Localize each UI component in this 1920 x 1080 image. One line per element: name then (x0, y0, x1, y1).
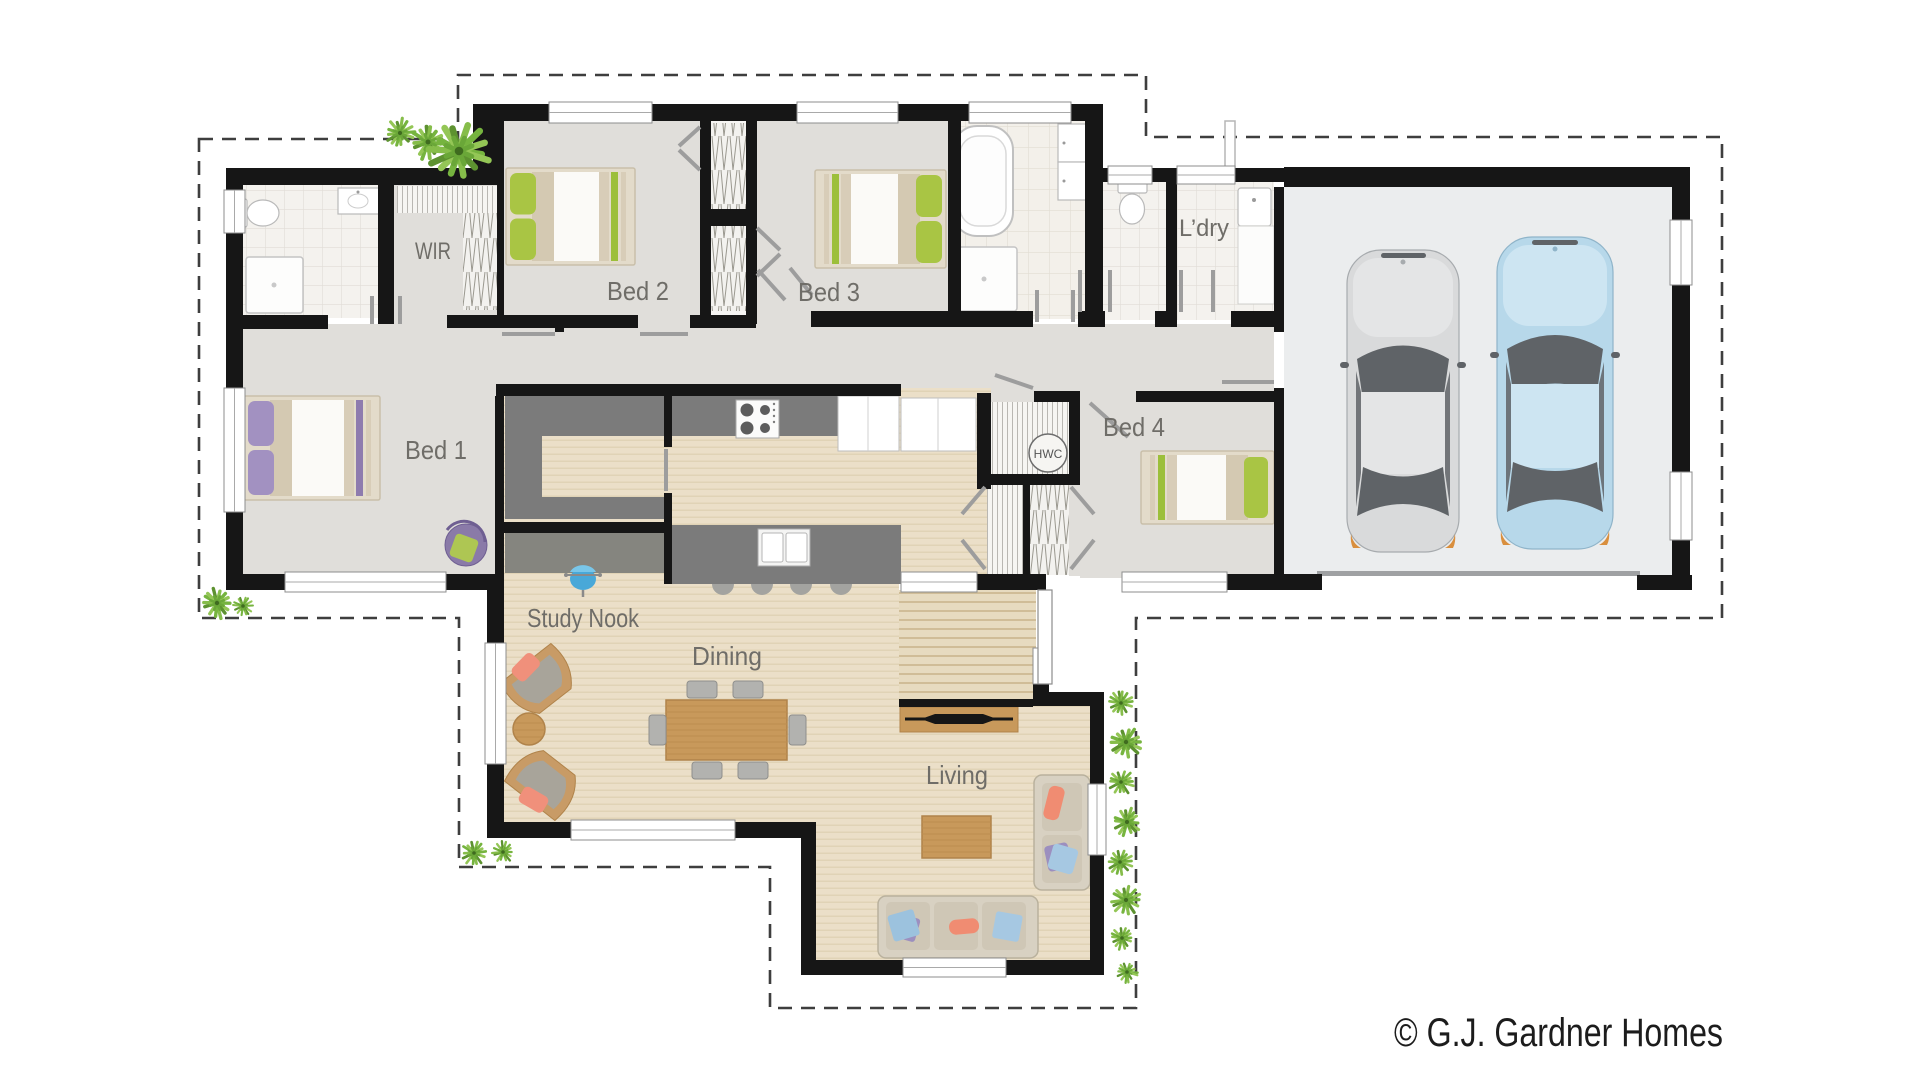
svg-text:WIR: WIR (415, 238, 451, 265)
svg-text:Bed 4: Bed 4 (1103, 412, 1165, 442)
svg-text:HWC: HWC (1034, 447, 1063, 461)
svg-text:Dining: Dining (692, 641, 762, 671)
svg-text:Bed 2: Bed 2 (607, 276, 669, 306)
svg-text:Living: Living (926, 760, 988, 790)
svg-text:Study Nook: Study Nook (527, 603, 640, 633)
svg-text:© G.J. Gardner Homes: © G.J. Gardner Homes (1394, 1011, 1723, 1055)
svg-text:Bed 3: Bed 3 (798, 277, 860, 307)
svg-text:L’dry: L’dry (1179, 215, 1229, 242)
svg-text:Bed 1: Bed 1 (405, 435, 467, 465)
